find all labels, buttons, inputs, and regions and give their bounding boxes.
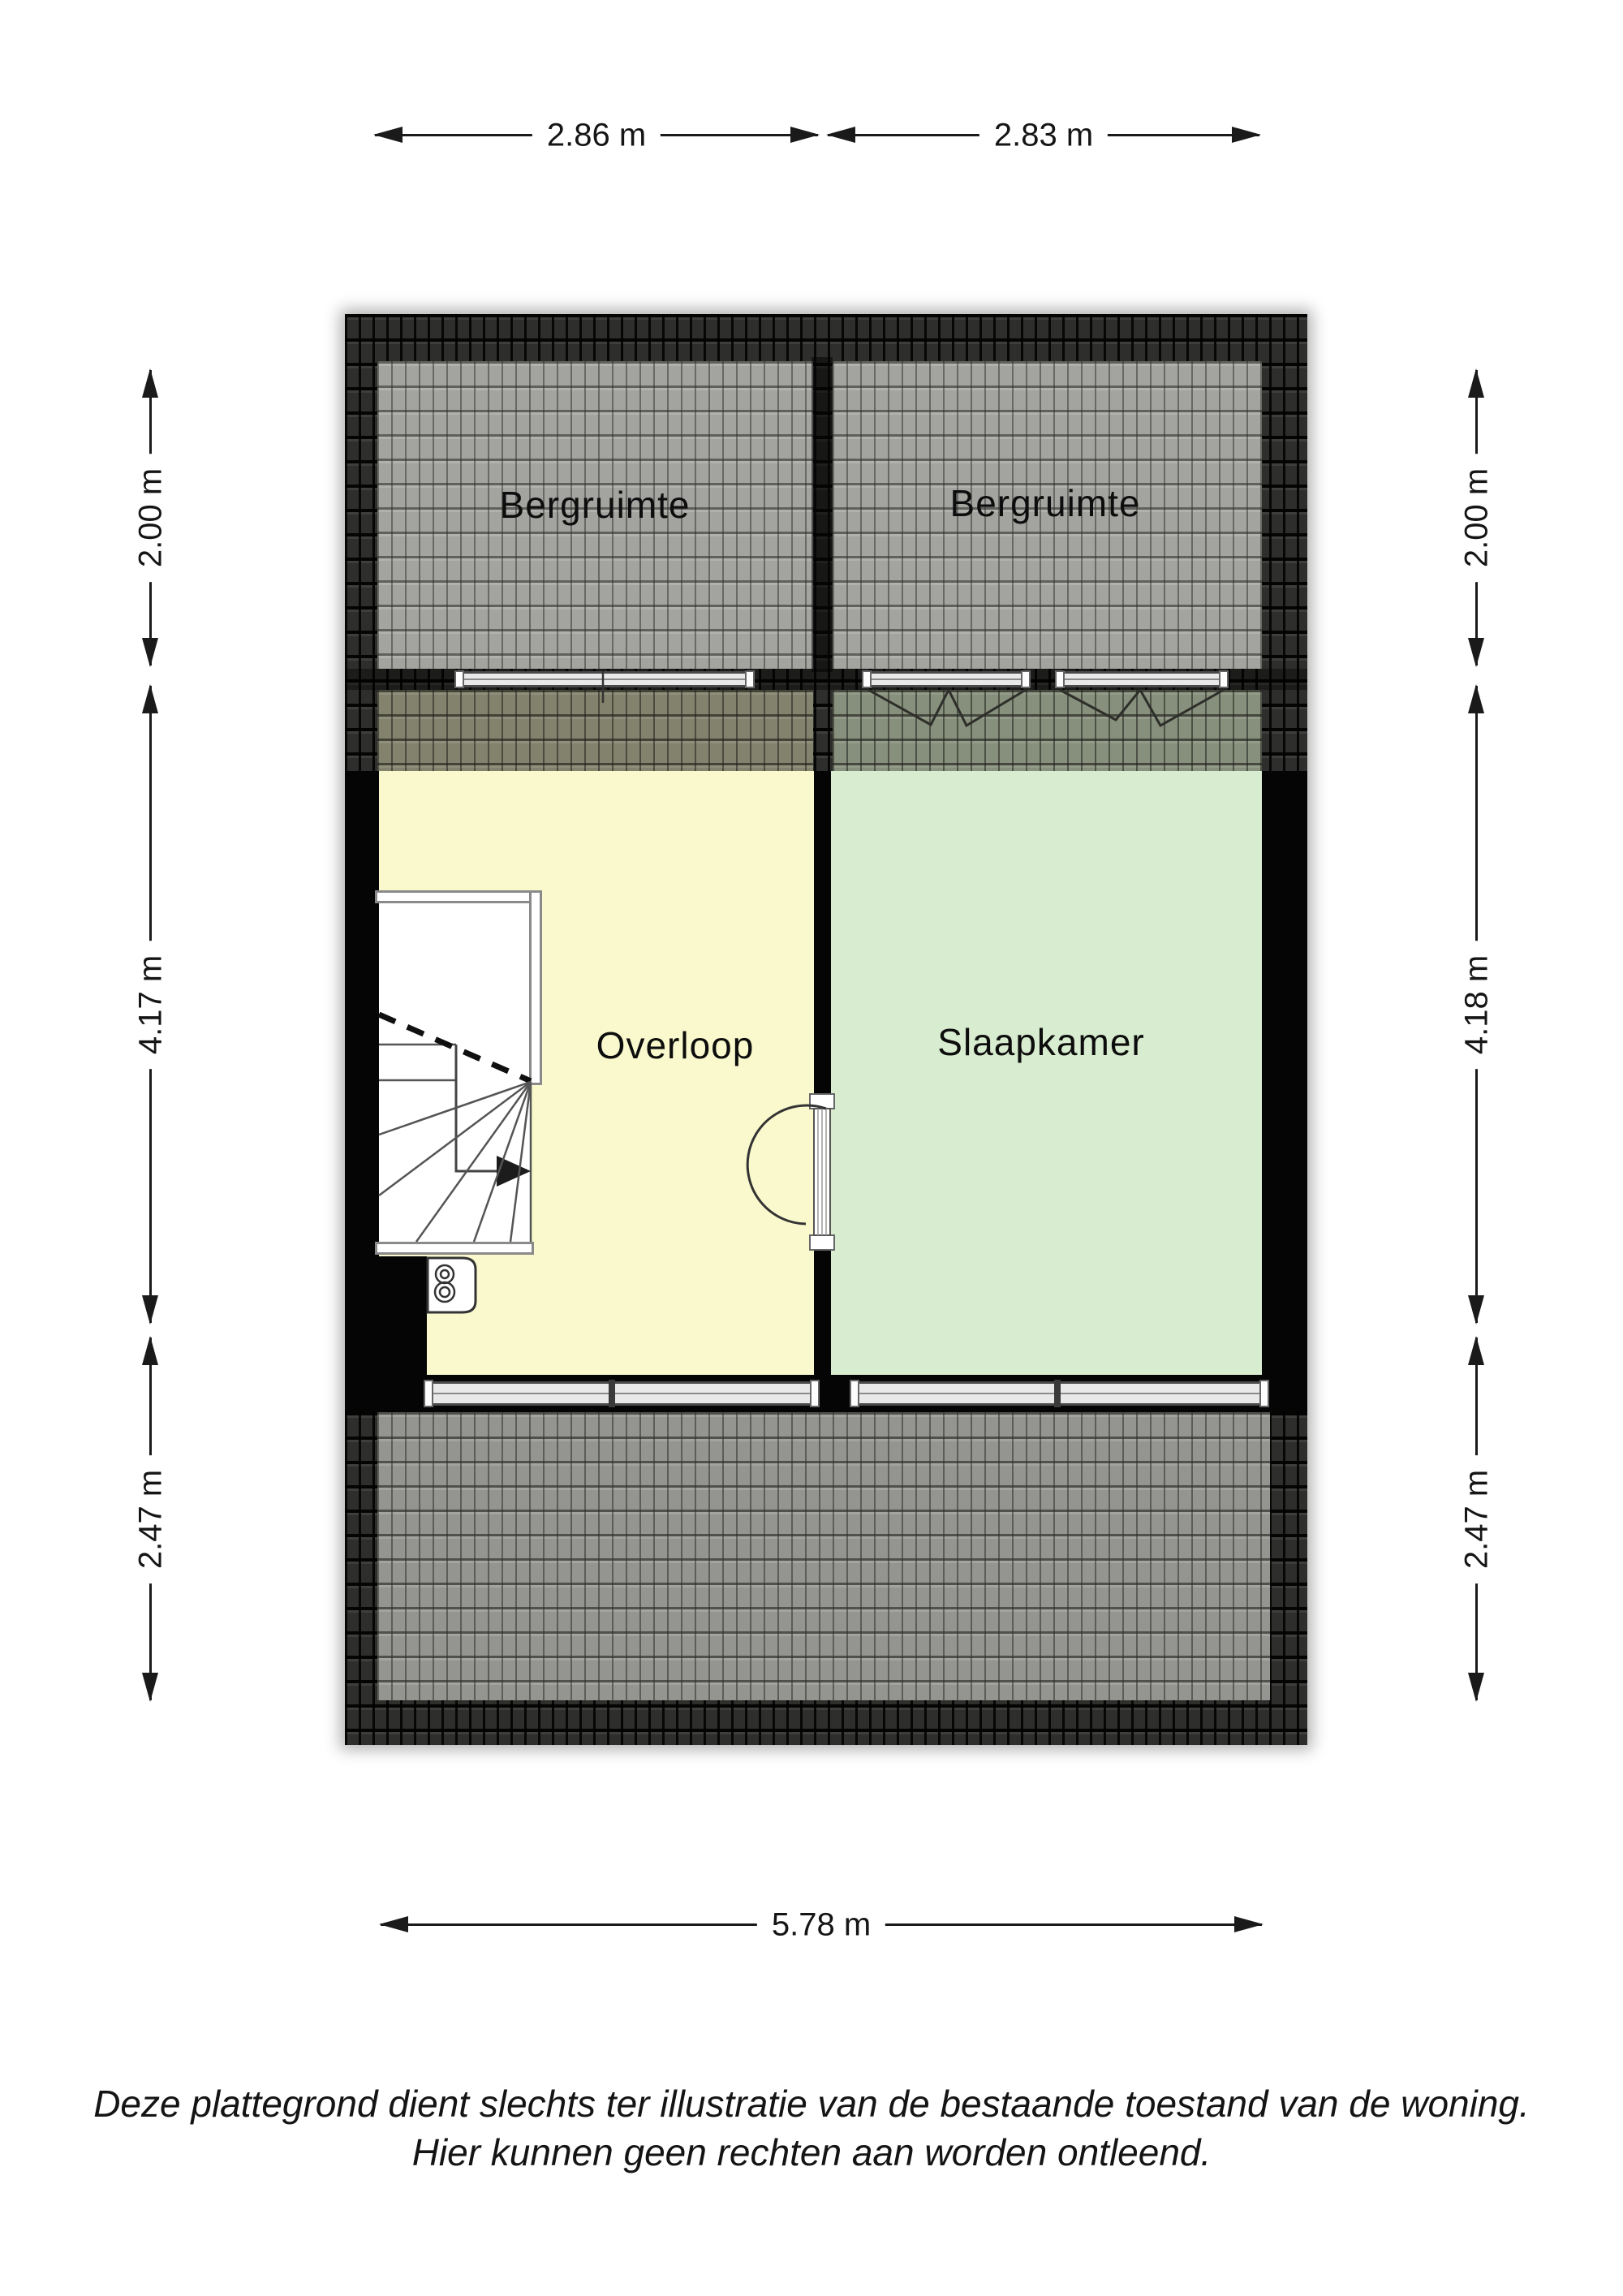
dimension-right-middle: 4.18 m <box>1456 686 1498 1323</box>
room-label-overloop: Overloop <box>596 1023 755 1067</box>
dimension-left-top: 2.00 m <box>130 370 172 666</box>
disclaimer-line-1: Deze plattegrond dient slechts ter illus… <box>0 2079 1623 2128</box>
left-wall <box>345 771 379 1256</box>
arrow-up-icon <box>1468 684 1484 713</box>
door-opening <box>814 1108 831 1250</box>
dimension-label: 2.00 m <box>133 454 170 582</box>
dimension-label: 2.86 m <box>532 118 661 154</box>
arrow-up-icon <box>142 1336 158 1365</box>
window-jamb <box>850 1380 859 1407</box>
window-jamb <box>454 670 464 688</box>
window-jamb <box>1259 1380 1269 1407</box>
storage-window-right-2 <box>1060 671 1224 687</box>
room-label-bergruimte-right: Bergruimte <box>950 481 1141 525</box>
center-wall-lower <box>814 1250 831 1375</box>
arrow-right-icon <box>1234 1916 1264 1932</box>
room-label-bergruimte-left: Bergruimte <box>500 483 691 527</box>
dimension-label: 5.78 m <box>757 1907 885 1944</box>
arrow-up-icon <box>142 368 158 398</box>
disclaimer: Deze plattegrond dient slechts ter illus… <box>0 2079 1623 2177</box>
dimension-label: 4.17 m <box>133 940 170 1068</box>
dimension-label: 2.00 m <box>1459 454 1496 582</box>
arrow-up-icon <box>142 684 158 713</box>
disclaimer-line-2: Hier kunnen geen rechten aan worden ontl… <box>0 2128 1623 2177</box>
arrow-right-icon <box>1232 127 1261 143</box>
arrow-down-icon <box>1468 1673 1484 1702</box>
stairwell-top-rail <box>375 890 534 903</box>
window-jamb <box>1219 670 1229 688</box>
arrow-left-icon <box>379 1916 408 1932</box>
stairwell-bottom-rail <box>375 1242 534 1255</box>
storage-window-left <box>458 671 750 687</box>
lower-window-left <box>427 1381 816 1406</box>
roof-bottom-light-area <box>377 1412 1270 1700</box>
window-jamb <box>424 1380 433 1407</box>
arrow-left-icon <box>826 127 855 143</box>
arrow-up-icon <box>1468 368 1484 398</box>
right-wall <box>1262 771 1307 1375</box>
storage-window-right-1 <box>868 671 1026 687</box>
slaapkamer-room <box>831 771 1262 1375</box>
window-jamb <box>810 1380 820 1407</box>
roof-over-slaapkamer <box>833 690 1262 771</box>
dimension-label: 2.83 m <box>979 118 1108 154</box>
dimension-right-top: 2.00 m <box>1456 370 1498 666</box>
dimension-left-bottom: 2.47 m <box>130 1338 172 1700</box>
dimension-label: 2.47 m <box>133 1454 170 1583</box>
window-jamb <box>862 670 872 688</box>
arrow-right-icon <box>790 127 820 143</box>
arrow-down-icon <box>142 638 158 667</box>
arrow-up-icon <box>1468 1336 1484 1365</box>
dimension-right-bottom: 2.47 m <box>1456 1338 1498 1700</box>
arrow-down-icon <box>142 1295 158 1325</box>
dimension-top-right: 2.83 m <box>828 118 1259 153</box>
window-jamb <box>1021 670 1031 688</box>
arrow-down-icon <box>1468 1295 1484 1325</box>
storage-divider-wall <box>811 357 833 672</box>
dimension-label: 2.47 m <box>1459 1454 1496 1583</box>
arrow-left-icon <box>373 127 403 143</box>
room-label-slaapkamer: Slaapkamer <box>937 1020 1144 1064</box>
dimension-left-middle: 4.17 m <box>130 686 172 1323</box>
center-wall-upper <box>814 771 831 1108</box>
left-wall-lower-block <box>345 1256 427 1375</box>
window-jamb <box>1055 670 1065 688</box>
dimension-label: 4.18 m <box>1459 940 1496 1068</box>
dimension-bottom: 5.78 m <box>381 1907 1262 1943</box>
stairwell-right-rail <box>529 890 542 1085</box>
arrow-down-icon <box>1468 638 1484 667</box>
window-jamb <box>745 670 755 688</box>
window-mullion <box>609 1380 615 1407</box>
window-mullion <box>1054 1380 1061 1407</box>
arrow-down-icon <box>142 1673 158 1702</box>
dimension-top-left: 2.86 m <box>375 118 818 153</box>
roof-over-overloop <box>377 690 813 771</box>
stairwell <box>379 902 531 1242</box>
floorplan-canvas: Bergruimte Bergruimte Overloop Slaapkame… <box>0 0 1623 2296</box>
